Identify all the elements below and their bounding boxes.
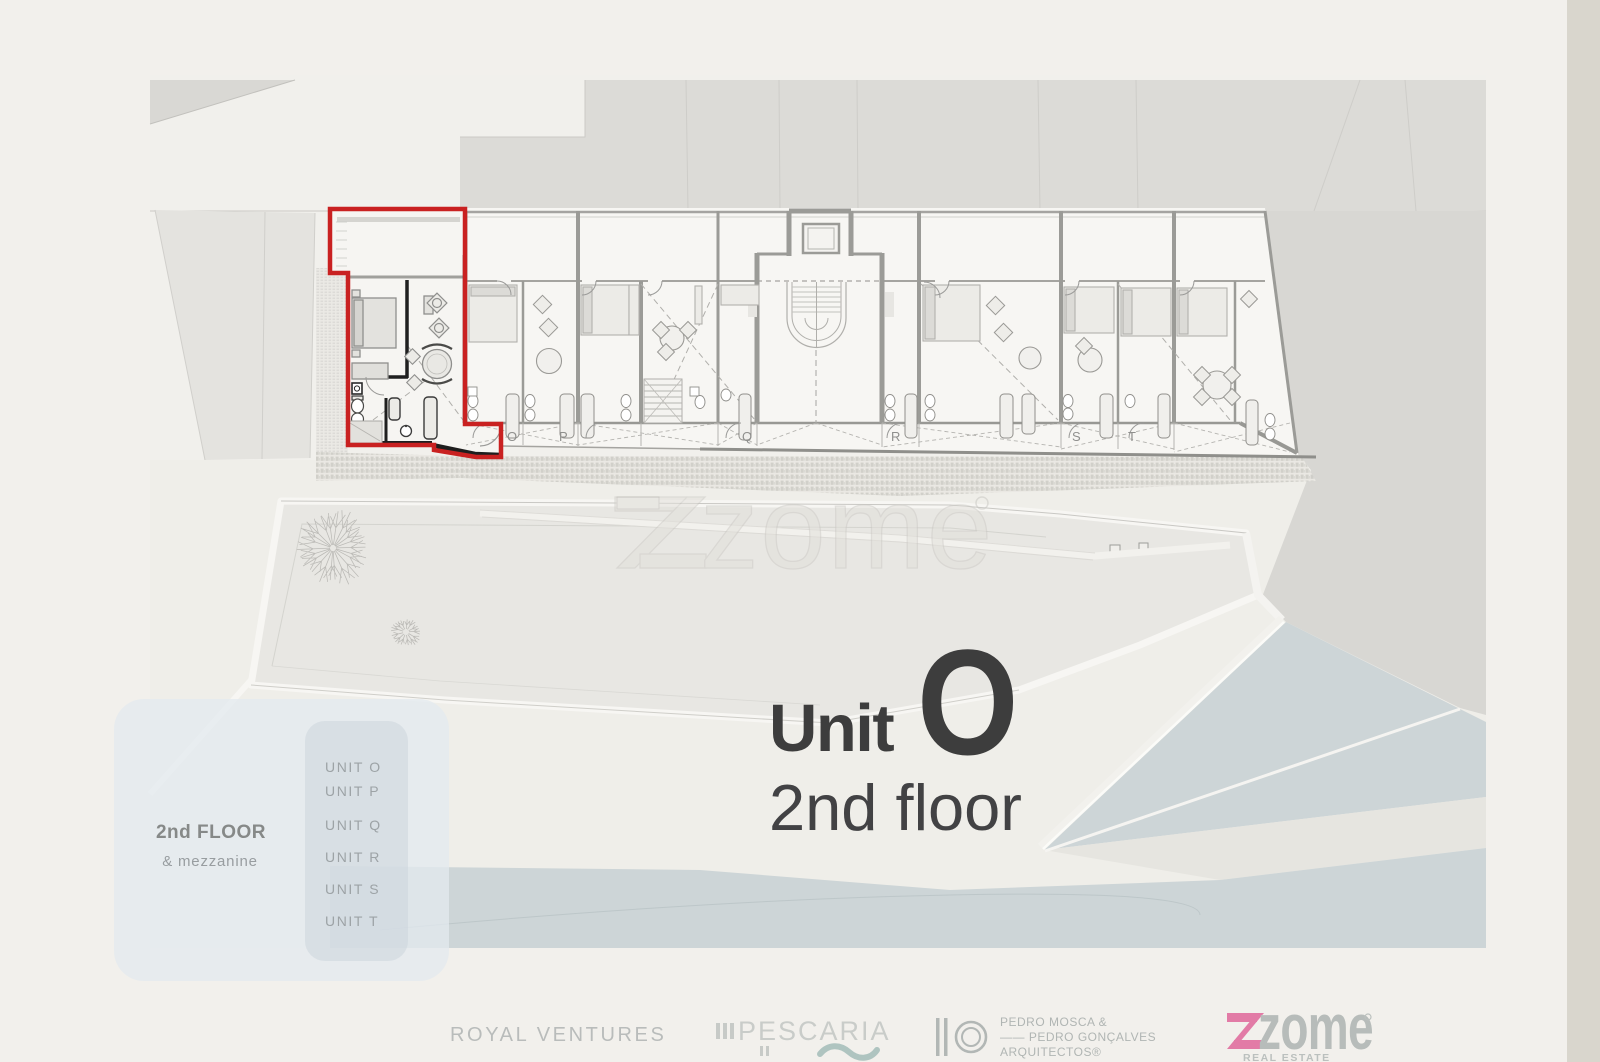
svg-text:& mezzanine: & mezzanine <box>162 853 258 870</box>
svg-text:ROYAL VENTURES: ROYAL VENTURES <box>450 1024 666 1046</box>
svg-text:S: S <box>1072 429 1081 444</box>
svg-text:Q: Q <box>742 429 752 444</box>
svg-text:UNIT S: UNIT S <box>325 881 380 897</box>
svg-text:REAL ESTATE: REAL ESTATE <box>1243 1052 1331 1062</box>
svg-text:—— PEDRO GONÇALVES: —— PEDRO GONÇALVES <box>1000 1030 1156 1044</box>
svg-text:UNIT R: UNIT R <box>325 849 381 865</box>
svg-text:UNIT O: UNIT O <box>325 759 382 775</box>
svg-text:Unit: Unit <box>769 691 894 766</box>
svg-text:UNIT P: UNIT P <box>325 783 380 799</box>
svg-text:T: T <box>1128 429 1136 444</box>
svg-text:ARQUITECTOS®: ARQUITECTOS® <box>1000 1045 1101 1059</box>
svg-text:P: P <box>559 429 568 444</box>
svg-text:R: R <box>891 429 900 444</box>
svg-text:2nd FLOOR: 2nd FLOOR <box>156 822 266 843</box>
svg-text:O: O <box>507 429 517 444</box>
svg-text:PESCARIA: PESCARIA <box>738 1016 891 1046</box>
svg-text:UNIT T: UNIT T <box>325 913 379 929</box>
svg-text:UNIT Q: UNIT Q <box>325 817 382 833</box>
svg-text:O: O <box>917 618 1019 786</box>
svg-text:2nd floor: 2nd floor <box>769 771 1022 844</box>
svg-text:PEDRO MOSCA &: PEDRO MOSCA & <box>1000 1015 1107 1029</box>
